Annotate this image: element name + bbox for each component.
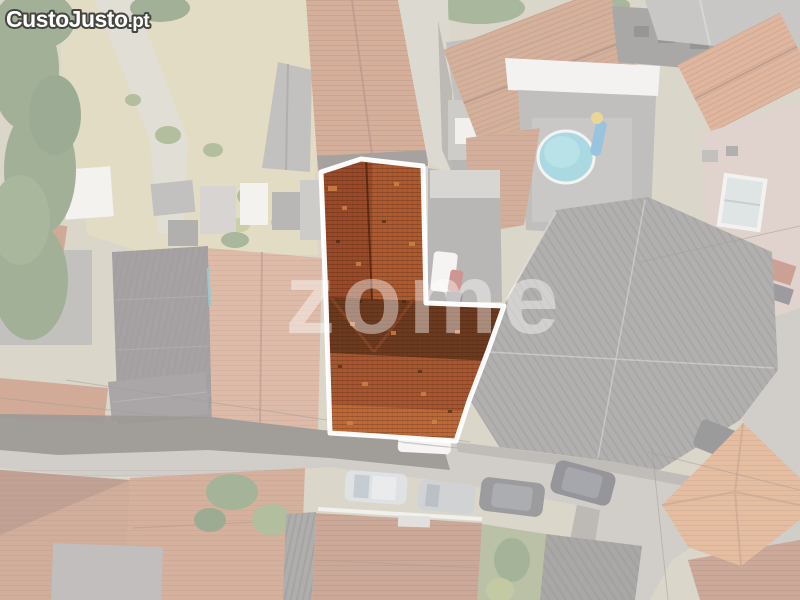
watermark-text: zome: [285, 243, 565, 355]
aerial-photo-canvas: zome CustoJusto.pt: [0, 0, 800, 600]
watermark: zome: [285, 243, 565, 355]
site-logo-tld: .pt: [128, 11, 151, 32]
site-logo-main: CustoJusto: [6, 6, 128, 32]
listing-aerial-photo: zome CustoJusto.pt: [0, 0, 800, 600]
